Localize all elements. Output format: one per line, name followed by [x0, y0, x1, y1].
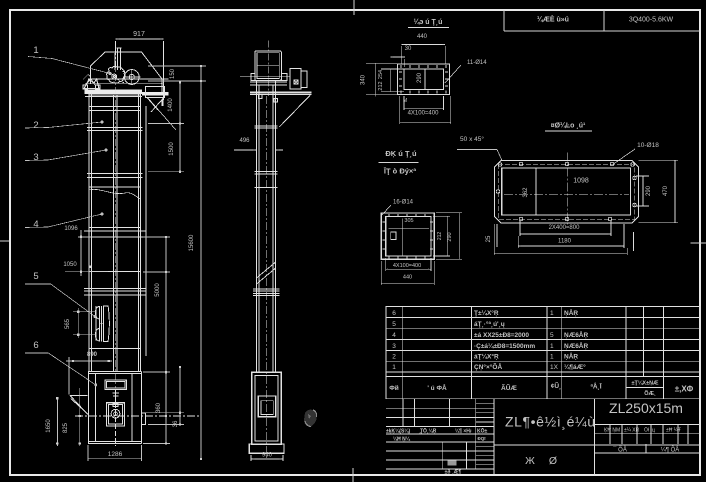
svg-text:16-Ø14: 16-Ø14 [393, 200, 414, 206]
svg-text:ÇŅ°×°ÕÅ: ÇŅ°×°ÕÅ [474, 362, 502, 371]
svg-text:6: 6 [392, 310, 396, 317]
svg-text:2: 2 [33, 120, 38, 131]
svg-text:1180: 1180 [558, 239, 572, 245]
svg-text:¯ ÕÅ: ¯ ÕÅ [612, 447, 627, 454]
svg-text:254: 254 [378, 70, 384, 79]
svg-text:ĶĦ ŅΜ: ĶĦ ŅΜ [604, 428, 620, 434]
svg-text:¼¶ ×Ƕ: ¼¶ ×Ƕ [455, 428, 471, 435]
svg-text:1: 1 [550, 310, 554, 317]
svg-text:10-Ø18: 10-Ø18 [637, 142, 659, 149]
svg-text:15600: 15600 [189, 234, 195, 251]
svg-text:1050: 1050 [63, 262, 77, 268]
svg-text:Ж: Ж [525, 455, 535, 467]
svg-text:1: 1 [33, 45, 38, 56]
svg-text:150: 150 [170, 68, 176, 79]
svg-text:212: 212 [437, 232, 443, 241]
svg-text:¢Ũ¸: ¢Ũ¸ [551, 381, 561, 390]
svg-text:305: 305 [404, 218, 413, 224]
svg-text:ÕÆ¸: ÕÆ¸ [644, 390, 656, 397]
svg-text:496: 496 [239, 138, 250, 144]
svg-text:1: 1 [392, 364, 396, 371]
svg-text:Фй: Фй [389, 384, 399, 392]
svg-text:1098: 1098 [573, 178, 589, 185]
svg-text:¤Ø¼Ŀо ¸ú¹: ¤Ø¼Ŀо ¸ú¹ [551, 122, 586, 130]
svg-text:290: 290 [417, 72, 423, 83]
svg-text:470: 470 [663, 185, 669, 196]
svg-text:M: M [403, 98, 407, 104]
svg-text:340: 340 [361, 74, 367, 85]
svg-text:825: 825 [63, 422, 69, 433]
svg-text:±Ħ ¼Ŧ: ±Ħ ¼Ŧ [666, 428, 681, 434]
svg-text:30: 30 [405, 46, 412, 52]
svg-text:360: 360 [156, 402, 162, 413]
svg-text:4X100=400: 4X100=400 [408, 111, 440, 117]
svg-text:' ú ФÅ: ' ú ФÅ [427, 383, 447, 392]
svg-text:917: 917 [133, 31, 145, 38]
svg-text:1X: 1X [550, 364, 559, 371]
svg-text:áŢ¼X°Ŗ: áŢ¼X°Ŗ [474, 353, 499, 361]
svg-text:·Ç±á¼±Ð8=1500mm: ·Ç±á¼±Ð8=1500mm [474, 342, 535, 350]
svg-text:¼Ħ Ņ¼: ¼Ħ Ņ¼ [393, 436, 411, 443]
svg-text:290: 290 [646, 185, 652, 196]
svg-text:1650: 1650 [46, 419, 52, 433]
svg-text:1: 1 [550, 343, 554, 350]
svg-text:5: 5 [392, 321, 396, 328]
svg-text:̧ŢŌ¸¼Ŗ: ̧ŢŌ¸¼Ŗ [419, 428, 437, 435]
svg-text:±ð ¸Æ¶: ±ð ¸Æ¶ [445, 469, 462, 476]
svg-text:ZL¶•ê½ì¸é¼ù: ZL¶•ê½ì¸é¼ù [505, 414, 596, 430]
svg-text:1096: 1096 [64, 226, 78, 232]
svg-text:565: 565 [65, 318, 71, 329]
svg-text:25: 25 [486, 235, 492, 242]
svg-text:1500: 1500 [169, 142, 175, 156]
svg-text:4: 4 [392, 332, 396, 339]
svg-text:4: 4 [33, 219, 38, 230]
svg-text:ĐĶ ú Ţ¸ú: ĐĶ ú Ţ¸ú [385, 149, 417, 158]
svg-text:±,XΦ: ±,XΦ [675, 385, 694, 394]
svg-text:áŢ¸·°ª¸ú'¸ų: áŢ¸·°ª¸ú'¸ų [474, 320, 505, 328]
svg-text:ĐQī: ĐQī [478, 436, 487, 441]
svg-text:ªÅ¸Ī: ªÅ¸Ī [590, 382, 601, 391]
svg-text:ŅÅŖ: ŅÅŖ [564, 308, 578, 317]
svg-text:6: 6 [33, 340, 38, 351]
svg-text:¼э ú Ţ¸ú: ¼э ú Ţ¸ú [414, 18, 443, 26]
svg-text:±¼ ХŖ: ±¼ ХŖ [624, 428, 640, 434]
svg-text:ĪŢ ò Đý×ª: ĪŢ ò Đý×ª [383, 167, 416, 176]
svg-text:Ø: Ø [549, 455, 557, 467]
svg-text:2X400=800: 2X400=800 [549, 225, 581, 231]
svg-text:5000: 5000 [155, 283, 161, 297]
svg-text:440: 440 [417, 34, 428, 40]
svg-text:¼¶ ÕÅ: ¼¶ ÕÅ [661, 447, 680, 454]
svg-text:890: 890 [87, 352, 98, 358]
svg-text:Ōł ¸ц: Ōł ¸ц [644, 427, 655, 434]
svg-text:4X100=400: 4X100=400 [393, 263, 421, 269]
svg-text:ŅÆ6ÅŖ: ŅÆ6ÅŖ [564, 330, 589, 339]
svg-text:440: 440 [403, 275, 412, 281]
svg-text:Ţ±¼X°Ŗ: Ţ±¼X°Ŗ [474, 309, 499, 317]
svg-text:362: 362 [523, 187, 529, 198]
svg-text:50 x 45°: 50 x 45° [460, 135, 484, 143]
svg-text:ŅÆ6ÅŖ: ŅÆ6ÅŖ [564, 341, 589, 350]
svg-text:5: 5 [550, 332, 554, 339]
svg-text:940: 940 [262, 453, 273, 459]
svg-text:3: 3 [392, 343, 396, 350]
svg-text:¼ÆÈ ù»ú: ¼ÆÈ ù»ú [537, 15, 569, 24]
svg-text:2: 2 [392, 354, 396, 361]
svg-text:ŅÅŖ: ŅÅŖ [564, 352, 578, 361]
svg-text:3: 3 [33, 152, 38, 163]
svg-text:ÃŨÆ: ÃŨÆ [501, 383, 517, 392]
svg-text:ĶŌ±: ĶŌ± [477, 428, 488, 435]
svg-text:36: 36 [173, 420, 179, 427]
svg-text:1286: 1286 [108, 451, 123, 458]
svg-text:290: 290 [447, 232, 453, 241]
svg-text:±Ţ¼X±ŅÆ: ±Ţ¼X±ŅÆ [631, 380, 659, 387]
svg-text:11-Ø14: 11-Ø14 [467, 60, 487, 66]
svg-text:212: 212 [378, 81, 384, 90]
svg-text:¼¶áÆ°: ¼¶áÆ° [564, 363, 586, 371]
svg-text:1400: 1400 [168, 98, 174, 112]
svg-text:±ķĶ¼(Ѕ¼): ±ķĶ¼(Ѕ¼) [386, 428, 410, 435]
svg-text:±á XX25±Ð8=2000: ±á XX25±Ð8=2000 [474, 332, 529, 339]
svg-text:ZL250x15m: ZL250x15m [609, 400, 683, 416]
svg-text:3Q400-5.6KW: 3Q400-5.6KW [629, 17, 674, 24]
svg-text:1: 1 [550, 354, 554, 361]
svg-text:5: 5 [33, 271, 38, 282]
